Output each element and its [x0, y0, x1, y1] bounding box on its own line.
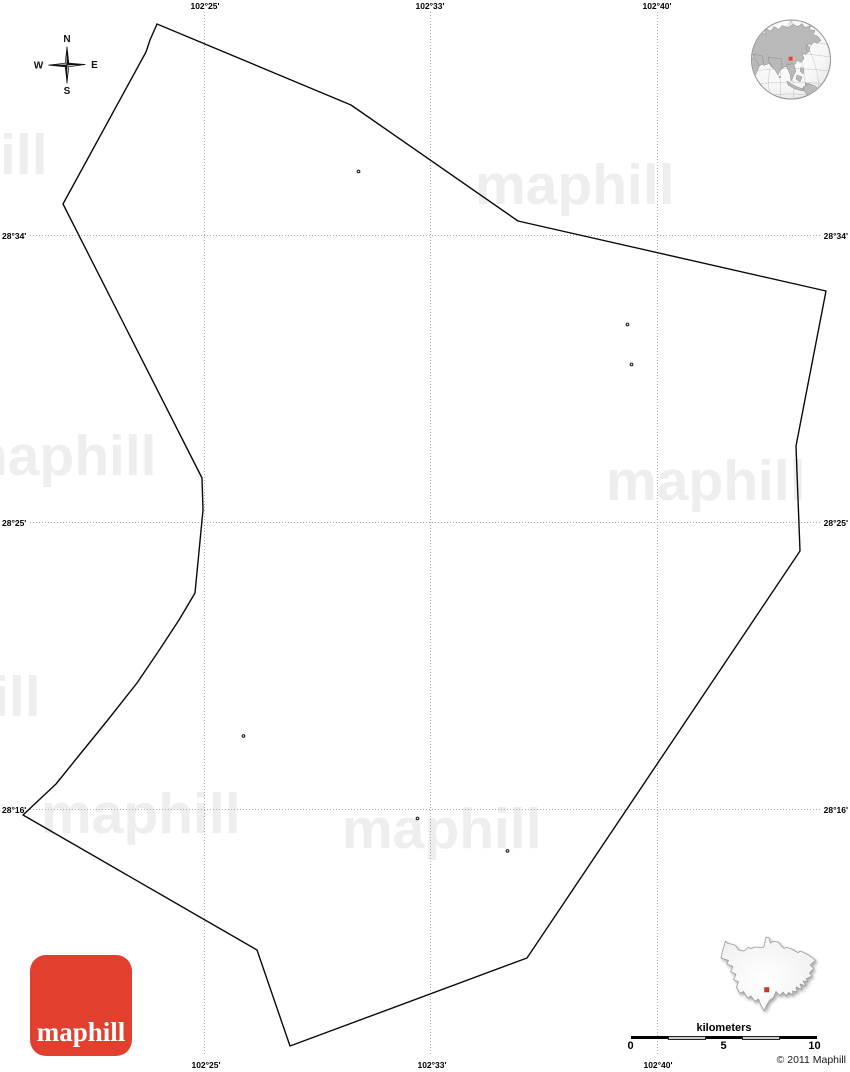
svg-text:W: W [34, 61, 44, 72]
svg-text:E: E [91, 60, 98, 71]
svg-text:N: N [63, 34, 70, 45]
svg-text:S: S [64, 86, 71, 97]
